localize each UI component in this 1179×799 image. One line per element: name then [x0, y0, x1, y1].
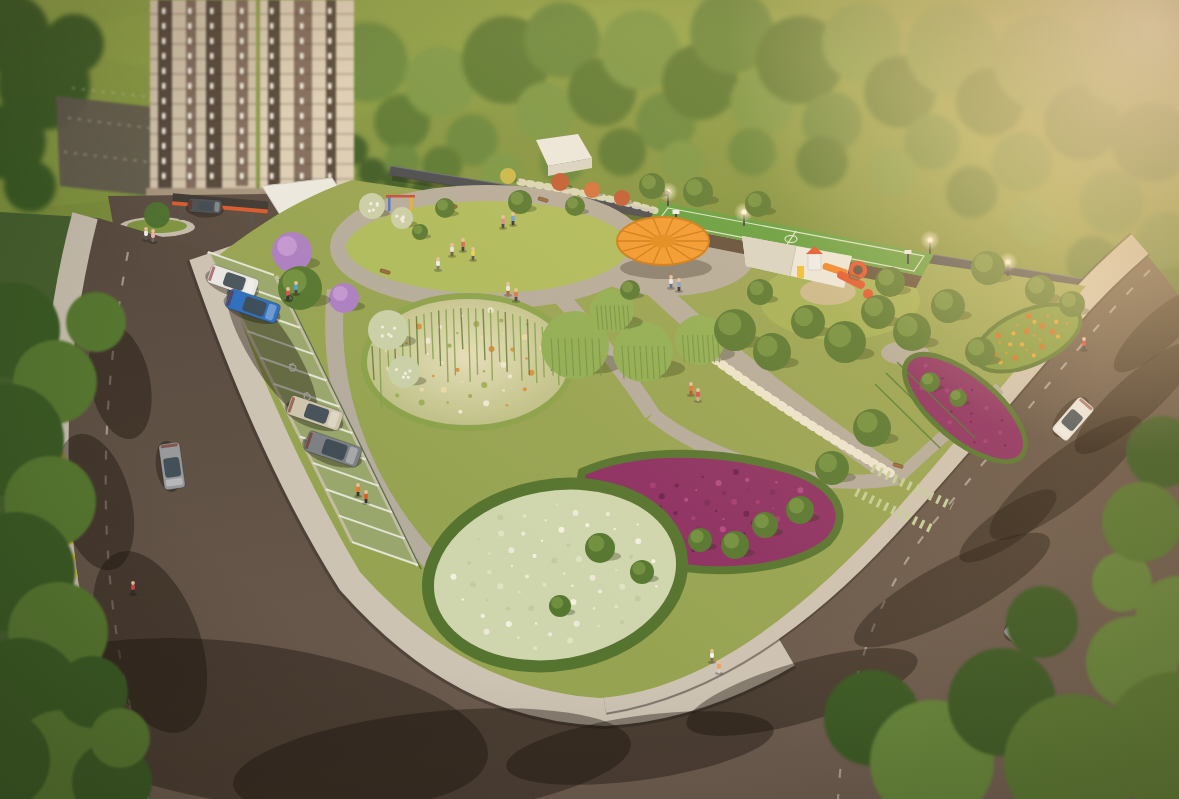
scene-canvas — [0, 0, 1179, 799]
vignette — [0, 0, 1179, 799]
aerial-park-render — [0, 0, 1179, 799]
